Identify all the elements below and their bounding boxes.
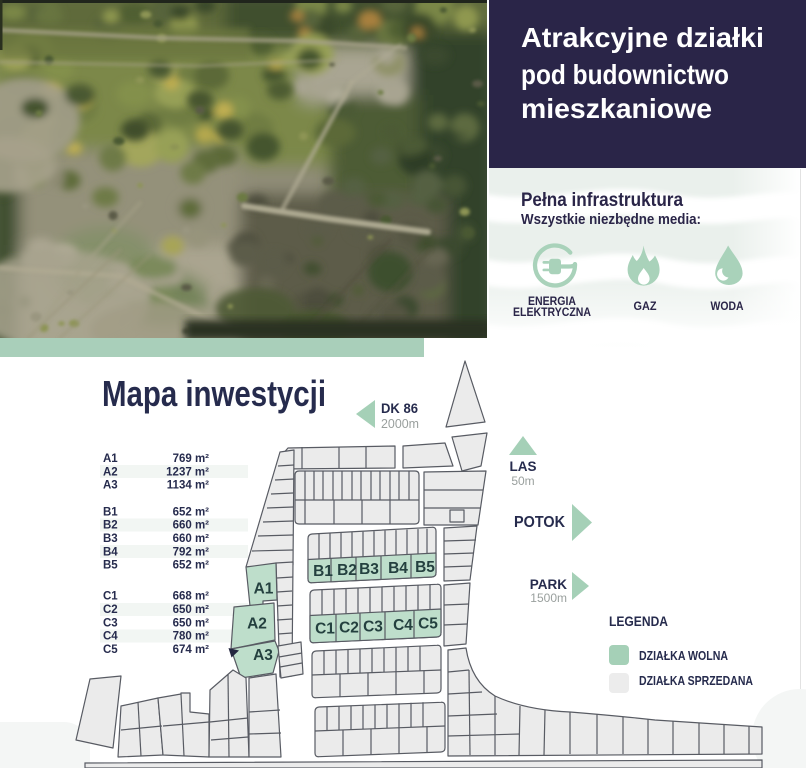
svg-text:B2: B2 (103, 520, 118, 532)
svg-text:792 m²: 792 m² (173, 546, 210, 558)
svg-text:C1: C1 (103, 591, 118, 603)
svg-text:B4: B4 (103, 546, 118, 558)
svg-text:A3: A3 (103, 480, 118, 492)
svg-text:50m: 50m (511, 474, 534, 488)
svg-text:B2: B2 (337, 562, 357, 579)
svg-text:674 m²: 674 m² (173, 644, 210, 656)
svg-text:Wszystkie niezbędne media:: Wszystkie niezbędne media: (521, 212, 701, 228)
svg-text:652 m²: 652 m² (173, 506, 210, 518)
svg-text:Mapa inwestycji: Mapa inwestycji (102, 373, 326, 414)
svg-text:PARK: PARK (530, 577, 568, 592)
svg-text:C2: C2 (339, 620, 359, 637)
svg-text:A1: A1 (254, 581, 274, 598)
svg-text:A2: A2 (103, 466, 118, 478)
svg-text:650 m²: 650 m² (173, 617, 210, 629)
svg-text:pod budownictwo: pod budownictwo (521, 59, 729, 90)
svg-text:652 m²: 652 m² (173, 560, 210, 572)
svg-text:C4: C4 (393, 617, 413, 634)
svg-text:2000m: 2000m (381, 417, 419, 431)
svg-text:C2: C2 (103, 604, 118, 616)
svg-text:C5: C5 (103, 644, 118, 656)
svg-text:A2: A2 (247, 616, 267, 633)
svg-text:A3: A3 (253, 647, 273, 664)
svg-text:1500m: 1500m (530, 591, 567, 605)
svg-text:B4: B4 (388, 560, 408, 577)
svg-text:C1: C1 (315, 621, 335, 638)
svg-text:1237 m²: 1237 m² (166, 466, 209, 478)
svg-text:1134 m²: 1134 m² (167, 480, 209, 492)
svg-text:DZIAŁKA SPRZEDANA: DZIAŁKA SPRZEDANA (639, 673, 753, 688)
svg-text:668 m²: 668 m² (173, 591, 210, 603)
svg-text:DK 86: DK 86 (381, 400, 418, 416)
svg-text:660 m²: 660 m² (173, 520, 210, 532)
svg-text:Atrakcyjne działki: Atrakcyjne działki (521, 22, 764, 53)
svg-text:GAZ: GAZ (634, 301, 657, 313)
svg-text:A1: A1 (103, 453, 118, 465)
svg-text:B3: B3 (359, 561, 379, 578)
svg-text:LAS: LAS (510, 459, 537, 474)
svg-text:769 m²: 769 m² (173, 453, 210, 465)
svg-text:DZIAŁKA WOLNA: DZIAŁKA WOLNA (639, 648, 728, 663)
svg-text:mieszkaniowe: mieszkaniowe (521, 93, 712, 124)
svg-text:WODA: WODA (711, 301, 744, 313)
svg-text:660 m²: 660 m² (173, 533, 210, 545)
svg-text:B1: B1 (313, 563, 333, 580)
svg-text:780 m²: 780 m² (173, 631, 210, 643)
svg-text:C4: C4 (103, 631, 118, 643)
svg-text:B5: B5 (103, 560, 118, 572)
svg-text:B5: B5 (415, 559, 435, 576)
svg-text:POTOK: POTOK (514, 514, 565, 531)
svg-text:650 m²: 650 m² (173, 604, 210, 616)
svg-text:B1: B1 (103, 506, 118, 518)
svg-text:C3: C3 (363, 619, 383, 636)
svg-text:B3: B3 (103, 533, 118, 545)
svg-text:ELEKTRYCZNA: ELEKTRYCZNA (513, 307, 591, 319)
svg-text:Pełna infrastruktura: Pełna infrastruktura (521, 190, 683, 211)
svg-text:C5: C5 (418, 616, 438, 633)
svg-text:LEGENDA: LEGENDA (609, 614, 668, 629)
svg-text:C3: C3 (103, 617, 118, 629)
